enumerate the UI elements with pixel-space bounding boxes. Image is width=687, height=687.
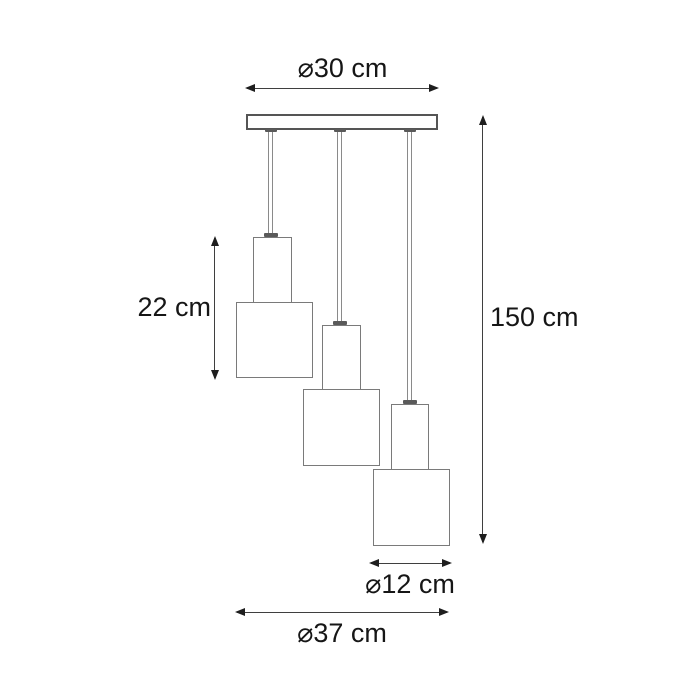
- pendant-cord-3: [407, 130, 412, 402]
- arrowhead-left-icon: [245, 84, 255, 92]
- arrowhead-up-icon: [479, 115, 487, 125]
- lamp-shade-1: [236, 302, 313, 378]
- canopy-diameter-arrow: [247, 88, 437, 89]
- pendant-cord-1: [268, 130, 273, 235]
- arrowhead-down-icon: [211, 370, 219, 380]
- arrowhead-left-icon: [369, 559, 379, 567]
- lamp-shade-3: [373, 469, 450, 546]
- arrowhead-up-icon: [211, 236, 219, 246]
- cord-top-cap-3: [404, 129, 416, 132]
- shade-diameter-arrow: [371, 563, 450, 564]
- shade-height-label: 22 cm: [123, 293, 211, 321]
- ceiling-canopy: [246, 114, 438, 130]
- cord-top-cap-1: [265, 129, 277, 132]
- lamp-shade-2: [303, 389, 380, 466]
- lamp-socket-1: [253, 237, 292, 303]
- lamp-socket-2: [322, 325, 361, 390]
- arrowhead-right-icon: [429, 84, 439, 92]
- pendant-lamp-dimension-diagram: ⌀30 cm 22 cm 150 cm ⌀12 cm: [0, 0, 687, 687]
- arrowhead-right-icon: [439, 608, 449, 616]
- total-width-arrow: [237, 612, 447, 613]
- total-width-label: ⌀37 cm: [252, 619, 432, 647]
- shade-diameter-label: ⌀12 cm: [335, 570, 485, 598]
- total-height-arrow: [482, 117, 483, 542]
- canopy-diameter-label: ⌀30 cm: [245, 54, 440, 82]
- arrowhead-down-icon: [479, 534, 487, 544]
- total-height-label: 150 cm: [490, 303, 579, 331]
- shade-height-arrow: [214, 238, 215, 378]
- cord-top-cap-2: [334, 129, 346, 132]
- arrowhead-right-icon: [442, 559, 452, 567]
- lamp-socket-3: [391, 404, 429, 470]
- arrowhead-left-icon: [235, 608, 245, 616]
- pendant-cord-2: [337, 130, 342, 323]
